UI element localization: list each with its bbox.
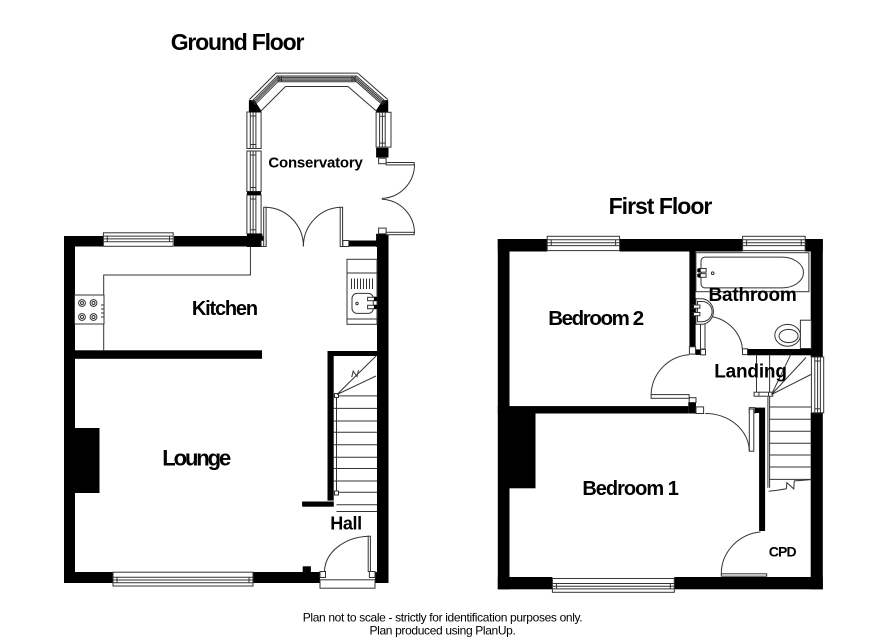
svg-text:Landing: Landing [714, 362, 786, 383]
svg-text:Hall: Hall [330, 513, 361, 533]
svg-text:Lounge: Lounge [162, 446, 231, 471]
svg-text:Bedroom 2: Bedroom 2 [548, 307, 643, 330]
svg-text:Bathroom: Bathroom [708, 285, 796, 306]
svg-text:First Floor: First Floor [609, 193, 713, 219]
svg-text:Kitchen: Kitchen [192, 298, 257, 320]
svg-text:Plan produced using PlanUp.: Plan produced using PlanUp. [370, 624, 516, 638]
svg-text:Conservatory: Conservatory [268, 155, 363, 172]
svg-text:Plan not to scale - strictly f: Plan not to scale - strictly for identif… [303, 611, 583, 625]
svg-text:Ground Floor: Ground Floor [171, 29, 305, 55]
svg-text:Bedroom 1: Bedroom 1 [582, 478, 678, 500]
svg-text:CPD: CPD [769, 544, 797, 560]
